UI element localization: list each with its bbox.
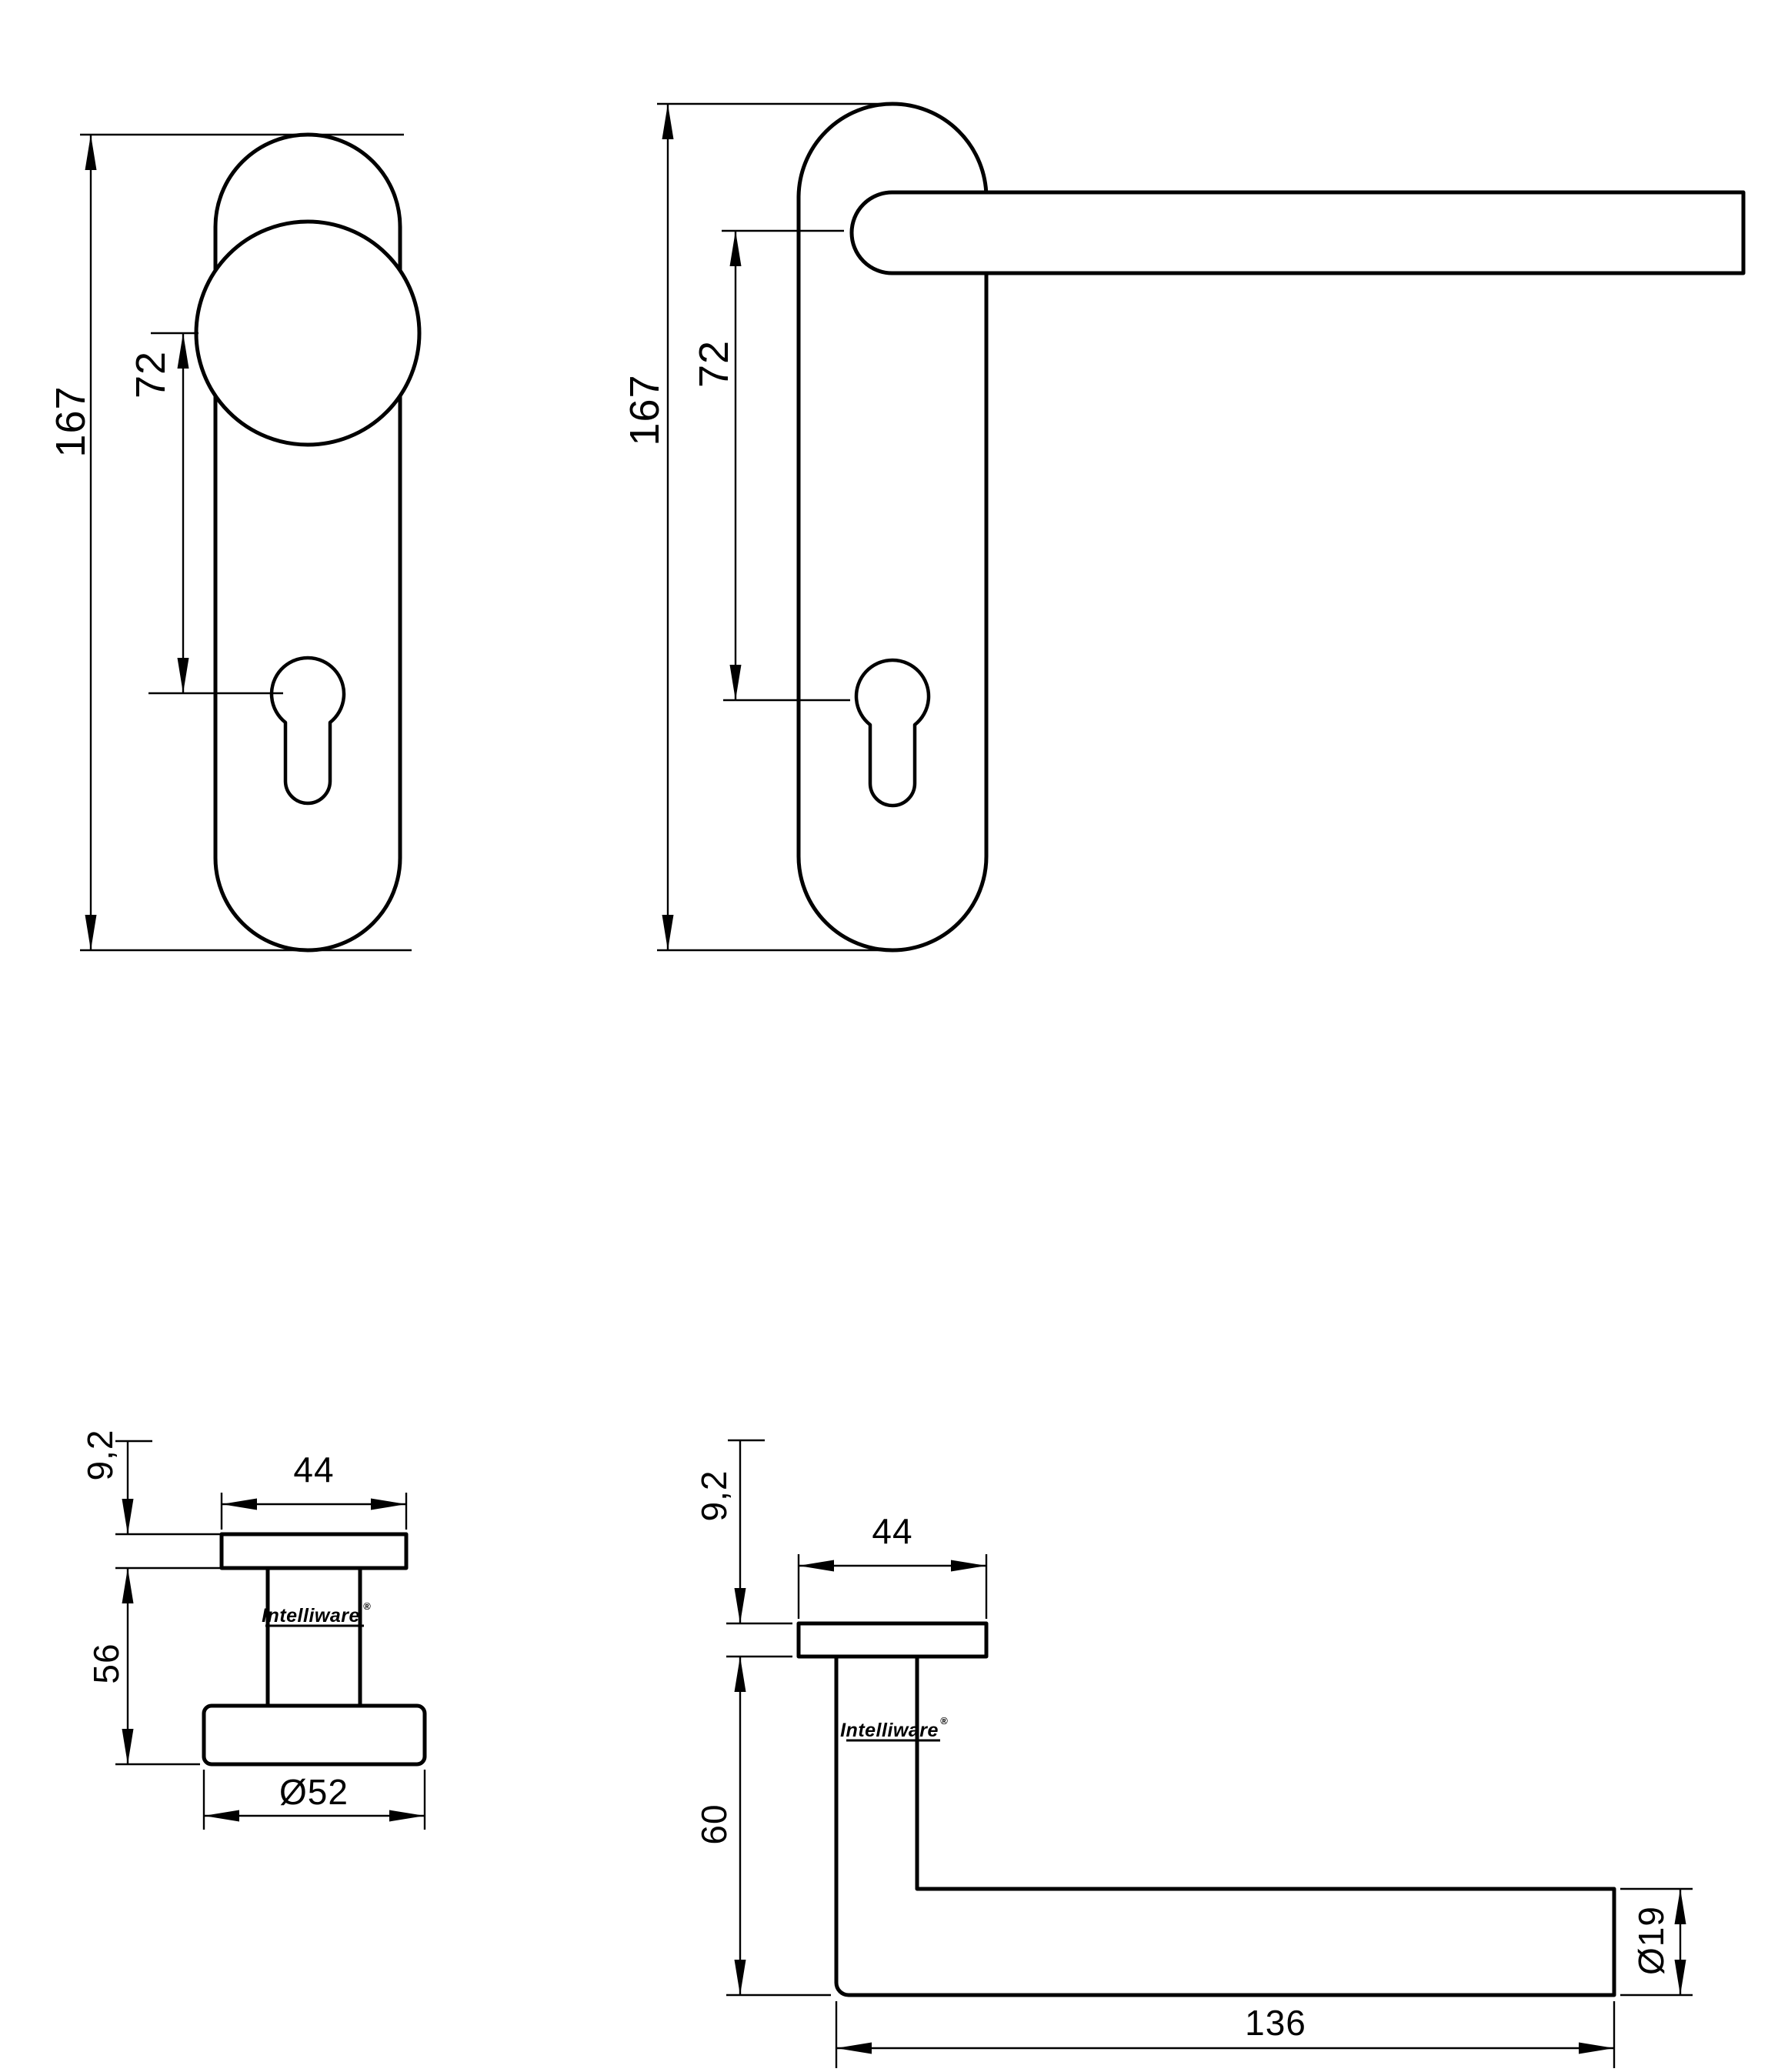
arrowhead-right	[371, 1499, 406, 1510]
brand-name: Intelliware	[840, 1720, 939, 1741]
arrowhead-left	[799, 1560, 834, 1572]
brand-logo: Intelliware ®	[262, 1600, 371, 1627]
dim-label-centers: 72	[691, 340, 737, 388]
arrowhead-up	[662, 104, 674, 139]
dimension-plate-thickness: 9,2	[694, 1440, 792, 1657]
arrowhead-down	[730, 665, 742, 700]
arrowhead-down	[735, 1588, 746, 1623]
dim-label-thickness: 9,2	[80, 1430, 120, 1481]
brand-logo: Intelliware ®	[840, 1715, 948, 1741]
lever-body	[836, 1657, 1614, 1995]
dimension-plate-width: 44	[222, 1450, 406, 1530]
arrowhead-down	[122, 1499, 134, 1534]
arrowhead-up	[122, 1568, 134, 1603]
backplate-section	[799, 1623, 986, 1657]
dim-label-height: 167	[622, 374, 668, 445]
dim-label-width: 44	[872, 1511, 912, 1551]
dim-label-thickness: 9,2	[694, 1470, 734, 1522]
dimension-projection: 56	[86, 1568, 200, 1764]
arrowhead-down	[178, 658, 189, 693]
technical-drawing-door-handle: 167 72 167	[0, 0, 1788, 2072]
arrowhead-right	[951, 1560, 986, 1572]
dim-label-diameter: Ø19	[1631, 1906, 1671, 1975]
lever-handle-outline	[852, 192, 1743, 273]
lever-side-view: Intelliware ® 9,2 60 44	[694, 1440, 1693, 2068]
arrowhead-down	[735, 1960, 746, 1995]
knob-head	[204, 1706, 425, 1764]
lever-front-view: 167 72	[622, 104, 1743, 950]
arrowhead-up	[735, 1657, 746, 1692]
brand-name: Intelliware	[262, 1605, 360, 1627]
dimension-projection: 60	[694, 1657, 831, 1995]
arrowhead-down	[85, 915, 97, 950]
backplate-section	[222, 1534, 406, 1568]
dim-label-projection: 56	[86, 1643, 126, 1683]
dimension-plate-width: 44	[799, 1511, 986, 1619]
dimension-plate-thickness: 9,2	[80, 1430, 220, 1568]
arrowhead-left	[222, 1499, 257, 1510]
dimension-knob-diameter: Ø52	[204, 1770, 425, 1830]
arrowhead-right	[1579, 2043, 1614, 2054]
arrowhead-down	[1675, 1960, 1686, 1995]
arrowhead-left	[204, 1810, 239, 1822]
dimension-lever-length: 136	[836, 2001, 1614, 2068]
knob-side-view: Intelliware ® 9,2 56 44	[80, 1430, 425, 1830]
knob-stem	[268, 1568, 360, 1706]
registered-mark: ®	[940, 1715, 948, 1727]
arrowhead-up	[730, 231, 742, 266]
knob-circle	[196, 222, 419, 445]
arrowhead-up	[1675, 1889, 1686, 1924]
dimension-lever-diameter: Ø19	[1620, 1889, 1693, 1995]
dim-label-width: 44	[293, 1450, 334, 1490]
arrowhead-up	[85, 135, 97, 170]
knob-front-view: 167 72	[48, 135, 419, 950]
arrowhead-up	[178, 333, 189, 369]
arrowhead-down	[662, 915, 674, 950]
registered-mark: ®	[363, 1600, 371, 1612]
arrowhead-right	[389, 1810, 425, 1822]
arrowhead-down	[122, 1729, 134, 1764]
dim-label-length: 136	[1245, 2003, 1306, 2043]
dim-label-projection: 60	[694, 1803, 734, 1844]
arrowhead-left	[836, 2043, 872, 2054]
dim-label-height: 167	[48, 385, 94, 457]
dim-label-diameter: Ø52	[279, 1772, 349, 1812]
dim-label-centers: 72	[128, 351, 174, 399]
